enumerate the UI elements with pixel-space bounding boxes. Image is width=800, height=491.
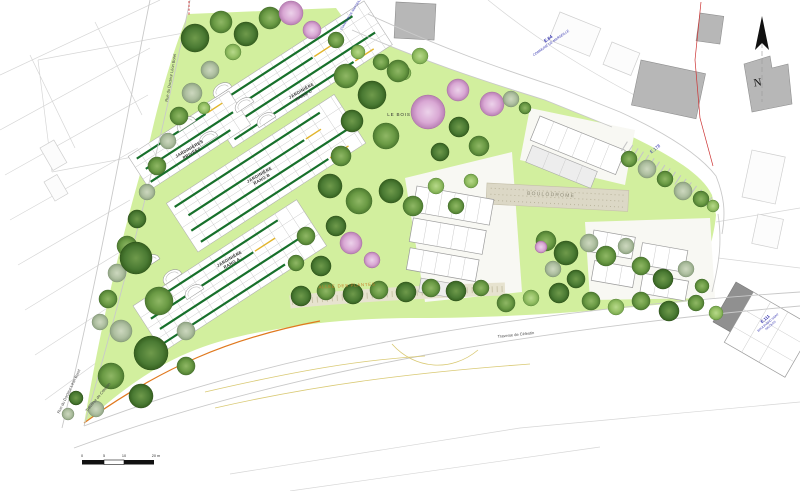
label-le-bois: LE BOIS — [387, 112, 410, 117]
site-plan-sheet: JARDINIÈRES PRIVÉES JARDINIÈRE RANG C JA… — [0, 0, 800, 491]
plan-canvas: JARDINIÈRES PRIVÉES JARDINIÈRE RANG C JA… — [0, 0, 800, 491]
scale-tick-20: 20 m — [152, 454, 160, 458]
building-southeast — [707, 282, 800, 377]
scale-tick-5: 5 — [103, 454, 105, 458]
contour-lines — [205, 344, 530, 408]
scale-tick-0: 0 — [81, 454, 83, 458]
scale-bar: 0 5 10 20 m — [81, 454, 160, 465]
north-letter: N — [753, 77, 763, 90]
scale-tick-10: 10 — [122, 454, 126, 458]
